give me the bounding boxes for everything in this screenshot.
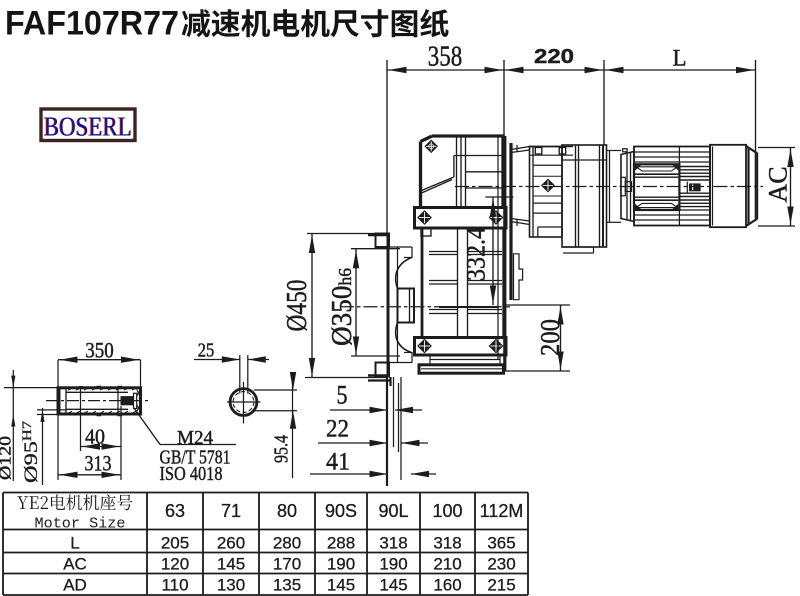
- svg-text:41: 41: [326, 449, 350, 476]
- svg-text:220: 220: [534, 46, 574, 68]
- svg-text:100: 100: [432, 501, 462, 521]
- svg-text:313: 313: [85, 451, 112, 476]
- svg-text:160: 160: [433, 576, 461, 595]
- svg-text:22: 22: [326, 416, 349, 443]
- svg-text:112M: 112M: [480, 501, 524, 521]
- svg-text:110: 110: [161, 576, 188, 595]
- svg-text:145: 145: [217, 555, 245, 574]
- svg-text:BOSERL: BOSERL: [44, 112, 132, 142]
- svg-text:170: 170: [273, 555, 301, 574]
- svg-text:145: 145: [327, 576, 355, 595]
- svg-text:FAF107R77: FAF107R77: [5, 5, 179, 43]
- svg-text:190: 190: [327, 555, 355, 574]
- svg-text:Ø350h6: Ø350h6: [327, 268, 358, 346]
- svg-text:71: 71: [221, 501, 241, 521]
- svg-text:L: L: [70, 534, 79, 553]
- svg-text:25: 25: [198, 341, 215, 362]
- svg-text:318: 318: [433, 534, 461, 553]
- svg-text:365: 365: [487, 534, 515, 553]
- svg-text:AC: AC: [764, 166, 793, 202]
- svg-text:230: 230: [487, 555, 515, 574]
- svg-text:90L: 90L: [378, 501, 408, 521]
- svg-text:90S: 90S: [325, 501, 357, 521]
- svg-text:200: 200: [535, 319, 565, 356]
- svg-text:AD: AD: [63, 576, 87, 595]
- svg-text:260: 260: [217, 534, 245, 553]
- svg-text:145: 145: [379, 576, 407, 595]
- svg-text:120: 120: [161, 555, 189, 574]
- svg-text:Ø95H7: Ø95H7: [20, 421, 42, 483]
- svg-text:332.4: 332.4: [462, 227, 491, 281]
- svg-text:AC: AC: [63, 555, 87, 574]
- svg-text:215: 215: [487, 576, 515, 595]
- svg-text:190: 190: [379, 555, 407, 574]
- svg-text:210: 210: [433, 555, 461, 574]
- svg-text:135: 135: [273, 576, 301, 595]
- svg-text:Ø450: Ø450: [281, 280, 313, 332]
- svg-text:318: 318: [379, 534, 407, 553]
- svg-text:80: 80: [277, 501, 297, 521]
- svg-text:Motor Size: Motor Size: [35, 515, 126, 533]
- svg-text:288: 288: [327, 534, 355, 553]
- svg-text:280: 280: [273, 534, 301, 553]
- svg-text:130: 130: [217, 576, 245, 595]
- svg-text:5: 5: [337, 381, 348, 410]
- svg-text:63: 63: [165, 501, 185, 521]
- svg-text:205: 205: [161, 534, 189, 553]
- svg-text:Ø120: Ø120: [0, 436, 15, 480]
- svg-text:358: 358: [428, 42, 463, 73]
- svg-text:95.4: 95.4: [271, 435, 293, 463]
- svg-text:40: 40: [85, 425, 105, 449]
- svg-text:350: 350: [85, 338, 114, 363]
- svg-text:ISO 4018: ISO 4018: [160, 463, 223, 485]
- svg-text:L: L: [672, 46, 686, 71]
